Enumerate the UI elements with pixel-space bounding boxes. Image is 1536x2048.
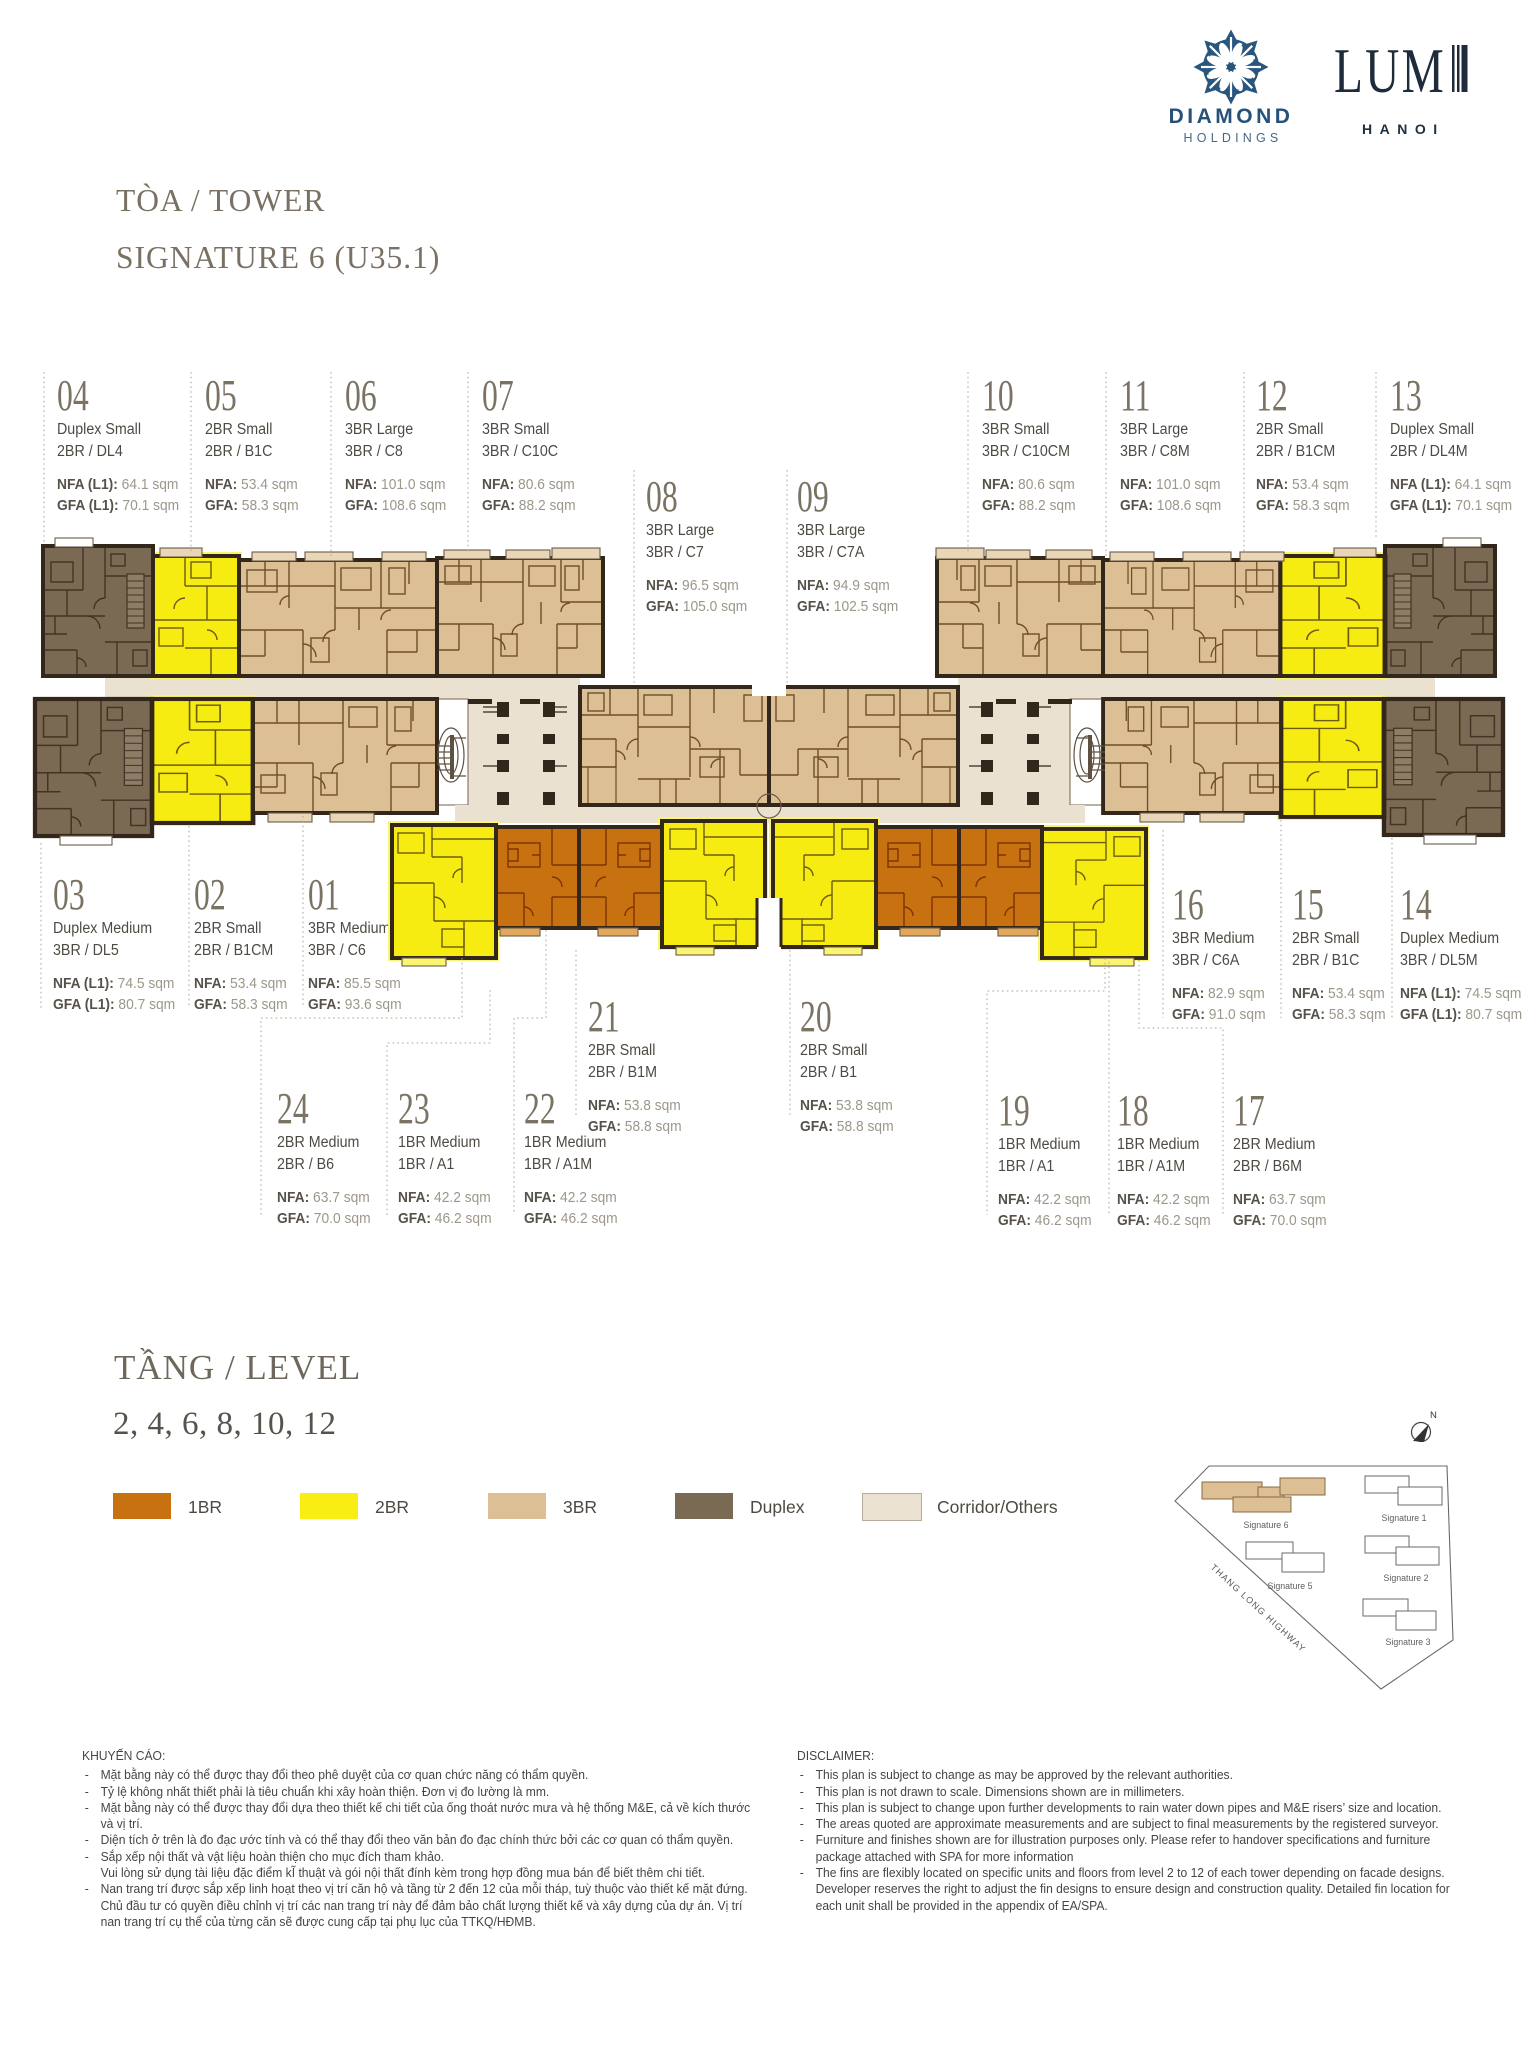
- svg-text:N: N: [1430, 1410, 1437, 1421]
- svg-text:Signature 2: Signature 2: [1384, 1573, 1429, 1583]
- svg-text:Signature 1: Signature 1: [1382, 1513, 1427, 1523]
- svg-text:Signature 5: Signature 5: [1268, 1581, 1313, 1591]
- svg-text:Signature 3: Signature 3: [1386, 1637, 1431, 1647]
- svg-text:Signature 6: Signature 6: [1244, 1520, 1289, 1530]
